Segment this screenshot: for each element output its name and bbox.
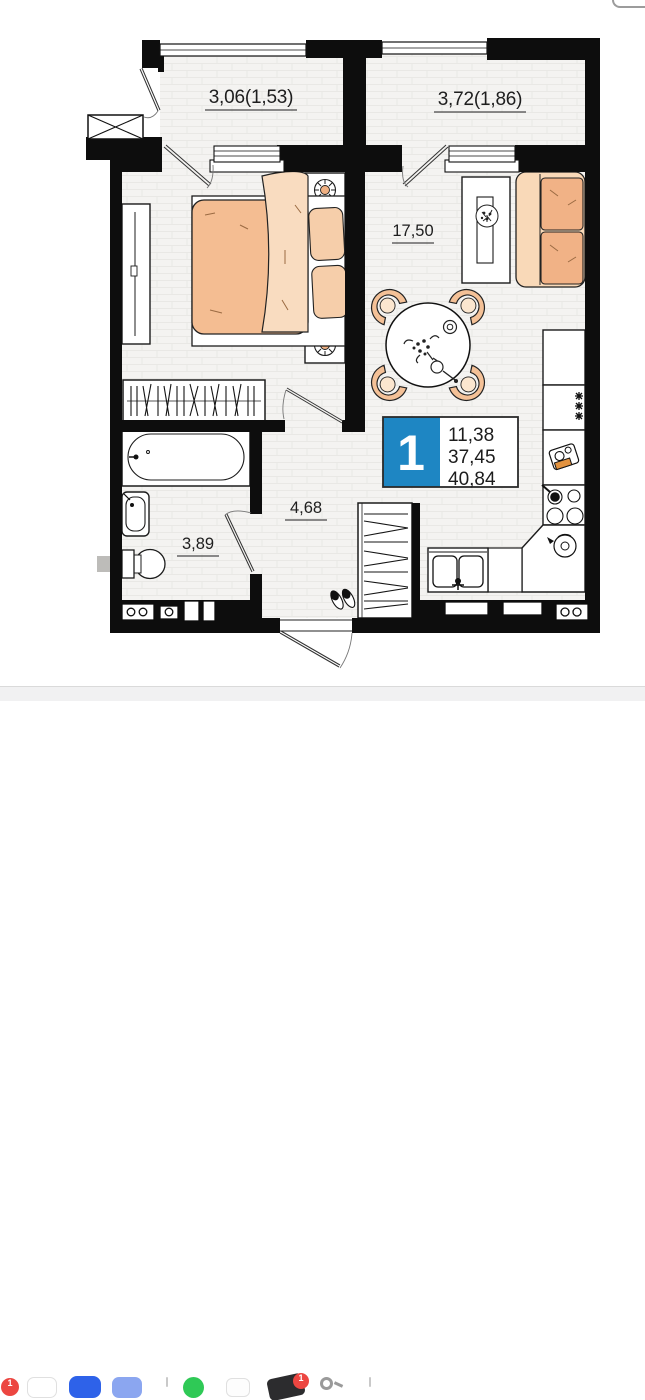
stove bbox=[542, 485, 585, 525]
floor-plan-image: 3,06(1,53) 3,72(1,86) 17,50 3,89 4,68 1 … bbox=[0, 0, 645, 700]
unit-rooms-count: 1 bbox=[397, 425, 425, 481]
dock-app-light-blue-icon[interactable] bbox=[112, 1377, 142, 1398]
bathtub bbox=[122, 428, 250, 486]
wardrobe-hangers bbox=[123, 380, 265, 422]
notification-badge[interactable]: 1 bbox=[1, 1378, 19, 1396]
living-window bbox=[445, 146, 519, 172]
bathroom-label: 3,89 bbox=[182, 535, 214, 553]
unit-living-area: 11,38 bbox=[448, 425, 494, 446]
tv-stand bbox=[462, 177, 510, 283]
bed bbox=[192, 171, 348, 346]
fridge bbox=[543, 330, 585, 385]
dock-separator bbox=[166, 1377, 168, 1387]
dock-app-white-icon[interactable] bbox=[27, 1377, 57, 1398]
balcony-right-label: 3,72(1,86) bbox=[438, 89, 523, 110]
kitchen-sink bbox=[428, 548, 522, 592]
hall-wardrobe bbox=[358, 503, 412, 618]
living-label: 17,50 bbox=[392, 222, 433, 240]
partial-button-edge[interactable] bbox=[612, 0, 645, 8]
unit-apartment-area: 37,45 bbox=[448, 447, 496, 468]
dock-app-white-icon-2[interactable] bbox=[226, 1378, 250, 1397]
dock-bar: 1 1 bbox=[0, 686, 645, 701]
balcony-left-label: 3,06(1,53) bbox=[209, 87, 294, 108]
hallway-label: 4,68 bbox=[290, 499, 322, 517]
washbasin bbox=[122, 492, 149, 536]
dock-separator bbox=[369, 1377, 371, 1387]
unit-badge: 1 11,38 37,45 40,84 bbox=[383, 417, 518, 490]
ventilation-shaft-icon bbox=[88, 115, 143, 139]
duct-stub bbox=[97, 556, 110, 572]
sofa bbox=[516, 172, 585, 287]
wardrobe bbox=[122, 204, 150, 344]
keychain-icon-stem bbox=[334, 1381, 343, 1388]
bedroom-window bbox=[210, 146, 284, 172]
cup-icon bbox=[444, 321, 457, 334]
message-badge: 1 bbox=[293, 1373, 309, 1389]
keychain-icon[interactable] bbox=[320, 1377, 333, 1390]
dock-app-blue-icon[interactable] bbox=[69, 1376, 101, 1398]
plant-icon bbox=[476, 205, 498, 227]
toilet bbox=[122, 550, 165, 579]
dock-app-green-icon[interactable] bbox=[183, 1377, 204, 1398]
unit-total-area: 40,84 bbox=[448, 469, 496, 490]
